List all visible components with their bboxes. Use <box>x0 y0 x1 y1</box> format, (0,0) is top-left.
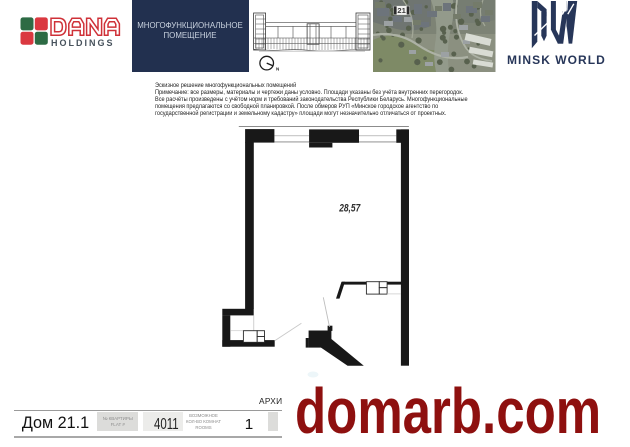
svg-text:21: 21 <box>398 6 406 15</box>
svg-text:MINSK WORLD: MINSK WORLD <box>507 53 606 67</box>
svg-text:HOLDINGS: HOLDINGS <box>51 38 115 48</box>
svg-text:N: N <box>276 66 279 71</box>
svg-text:28,57: 28,57 <box>338 203 360 215</box>
